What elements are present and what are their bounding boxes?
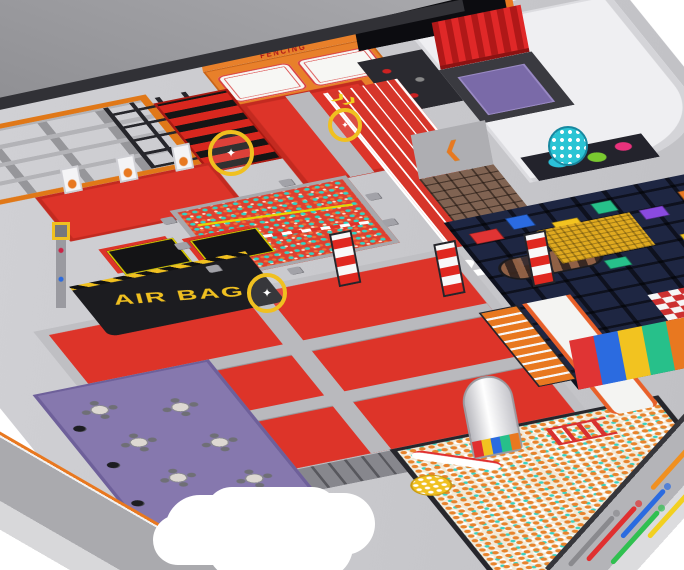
dome-ball [548,126,588,166]
pole [56,236,66,308]
hanging-ring: ✦ [208,130,254,176]
cafe-stool [105,461,121,469]
arrow-tip [634,499,644,509]
pole-cap [52,222,70,240]
ring-star-icon: ✦ [262,286,272,300]
cloud-shape [165,495,315,565]
hanging-ring: ✦ [328,108,362,142]
hanging-ring: ✦ [247,273,287,313]
play-panel [505,214,536,230]
cafe-stool [71,425,87,433]
ring-star-icon: ✦ [226,146,236,160]
arrow-tip [663,482,673,492]
ring-star-icon: ✦ [341,120,349,131]
trampoline-park-render: FENCING SQUAD UP ❯❯ ❮ ❮ [0,0,684,570]
arrow-tip [612,508,622,518]
climbing-pole [46,222,76,308]
arrow-tip [657,503,667,513]
chevron-icon: ❮ [442,136,462,164]
